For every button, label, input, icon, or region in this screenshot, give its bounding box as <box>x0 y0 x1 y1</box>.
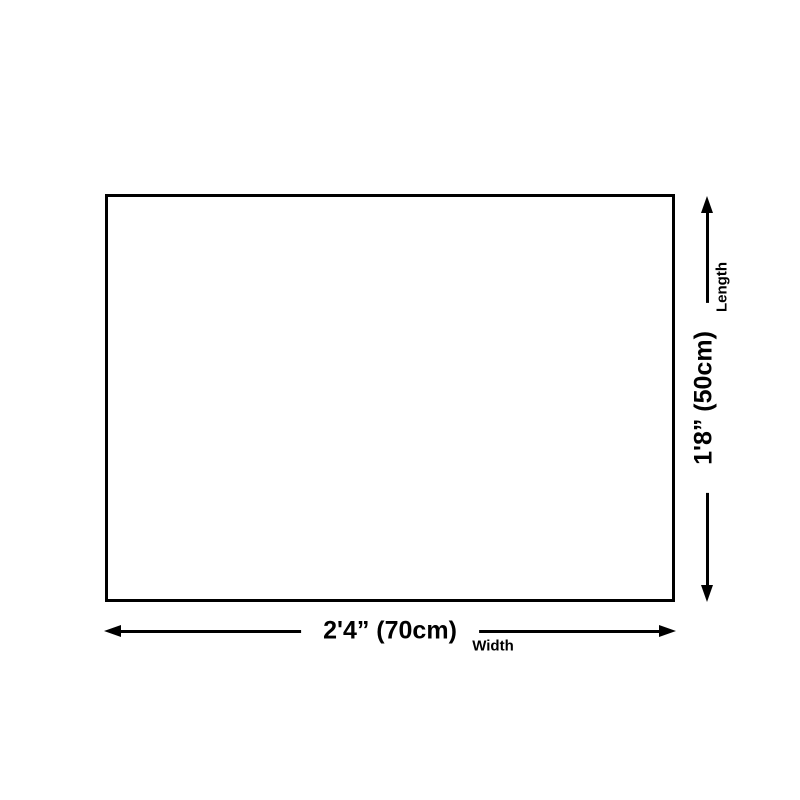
length-dimension-value: 1'8” (50cm) <box>688 303 721 493</box>
product-outline-box <box>105 194 675 602</box>
arrowhead-left-icon <box>104 625 121 637</box>
width-dimension-value: 2'4” (70cm) <box>301 615 479 648</box>
length-dimension-label: Length <box>714 262 731 312</box>
width-dimension-label: Width <box>472 638 514 655</box>
arrowhead-right-icon <box>659 625 676 637</box>
arrowhead-down-icon <box>701 585 713 602</box>
size-diagram: 2'4” (70cm) Width 1'8” (50cm) Length <box>0 0 800 800</box>
arrowhead-up-icon <box>701 196 713 213</box>
